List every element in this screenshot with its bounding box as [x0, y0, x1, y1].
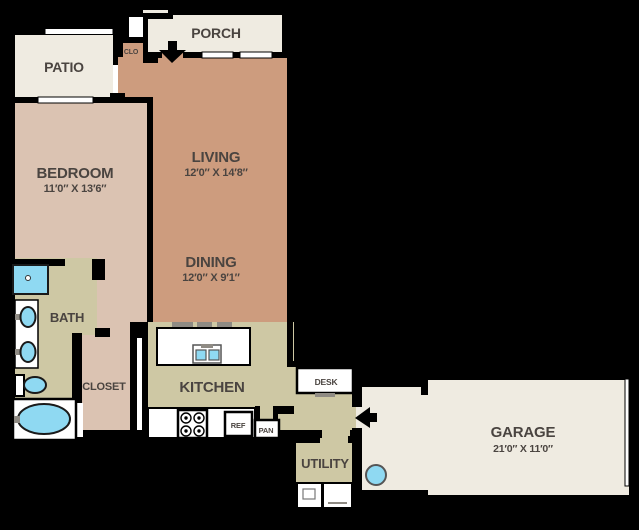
bedroom-dims: 11′0″ X 13′6″: [44, 183, 108, 195]
patio-top-window: [45, 29, 113, 35]
floor-plan: PATIO PORCH CLO LIVING 12′0″ X 14′8″ DIN…: [0, 0, 639, 530]
vanity-sink-1: [21, 307, 36, 327]
garage-dims: 21′0″ X 11′0″: [493, 443, 553, 455]
toilet-bowl: [24, 377, 46, 393]
living-window-1: [202, 52, 233, 58]
washer: [297, 483, 322, 508]
desk-label: DESK: [315, 377, 339, 387]
toilet-tank: [15, 375, 24, 396]
bar-stool-1: [172, 322, 193, 327]
utility-label: UTILITY: [301, 456, 349, 471]
patio-bottom-window: [38, 97, 93, 103]
bar-stool-2: [197, 322, 212, 327]
garage-door: [625, 379, 629, 486]
living-window-2: [240, 52, 272, 58]
ref-label: REF: [231, 421, 246, 430]
bedroom-label: BEDROOM: [37, 165, 114, 182]
bathtub: [18, 404, 70, 434]
dryer-handle: [328, 502, 347, 504]
bar-stool-3: [217, 322, 232, 327]
kitchen-sink-faucet: [201, 344, 213, 348]
dryer: [323, 483, 352, 508]
closet-label: CLOSET: [82, 381, 126, 393]
desk-chair: [315, 393, 335, 397]
clo-label: CLO: [124, 49, 139, 56]
pan-label: PAN: [259, 426, 274, 435]
kitchen-sink-basin-2: [209, 350, 219, 360]
garage-entry-floor: [356, 387, 426, 500]
tub-faucet: [14, 416, 20, 423]
porch-step-box: [129, 17, 143, 37]
living-dims: 12′0″ X 14′8″: [184, 167, 248, 179]
kitchen-sink-basin-1: [196, 350, 206, 360]
patio-door: [113, 65, 118, 93]
patio-label: PATIO: [44, 59, 84, 75]
kitchen-label: KITCHEN: [179, 379, 244, 396]
closet-hall-strip: [137, 338, 142, 430]
shower-drain: [26, 276, 31, 281]
dining-label: DINING: [185, 254, 236, 271]
dining-dims: 12′0″ X 9′1″: [182, 272, 240, 284]
utility-fixtures: [297, 483, 352, 508]
porch-label: PORCH: [191, 25, 241, 41]
garage-label: GARAGE: [491, 424, 556, 441]
bath-label: BATH: [50, 310, 84, 325]
vanity-sink-2: [21, 342, 36, 362]
water-heater: [366, 465, 386, 485]
living-label: LIVING: [192, 149, 241, 166]
